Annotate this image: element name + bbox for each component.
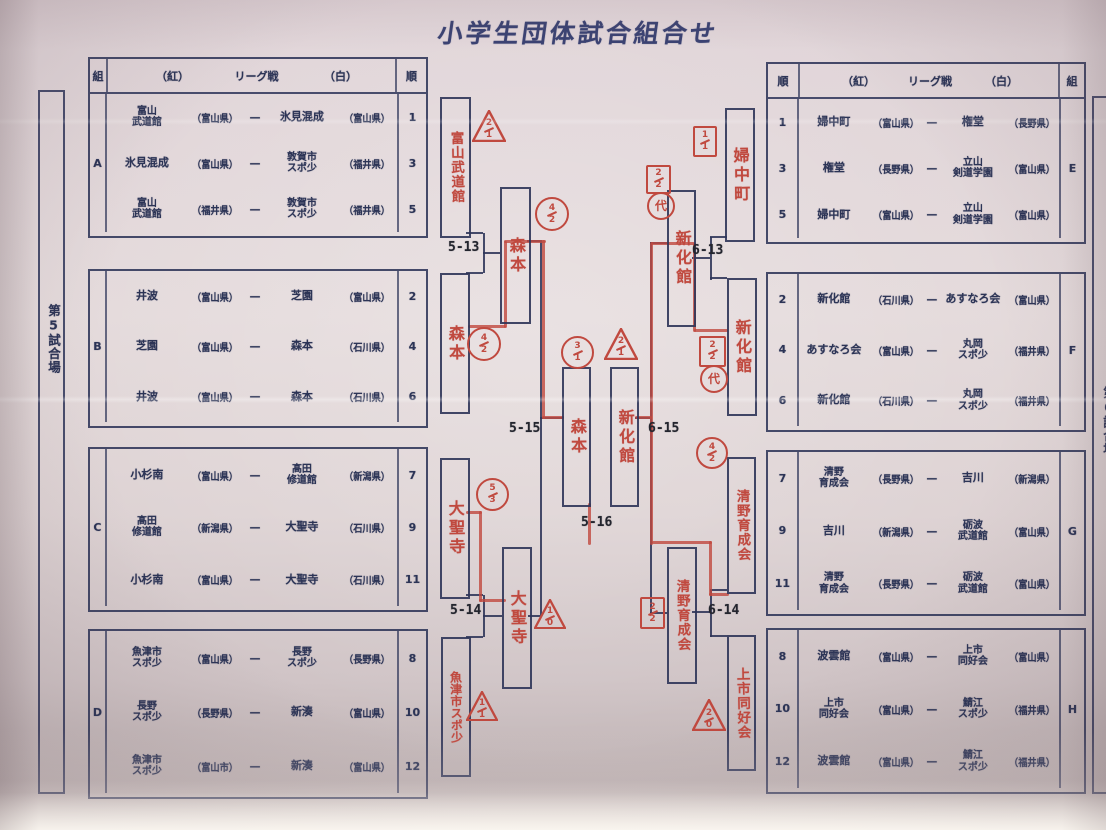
vs-dash: — [249,706,260,719]
red-team-pref: （富山県） [192,156,238,171]
white-team-name: あすなろ会 [945,293,1000,306]
order-number: 7 [409,469,417,482]
order-col-header: 順 [395,59,426,92]
white-side-header: （白） [985,73,1018,89]
league-table-A: 組（紅）リーグ戦（白）順A富山 武道館（富山県）—氷見混成（富山県）氷見混成（富… [88,57,428,238]
league-table-body: 7911清野 育成会（長野県）—吉川（新潟県）吉川（新潟県）—砺波 武道館（富山… [768,452,1084,610]
vs-dash: — [926,394,937,407]
red-team-name: 吉川 [823,525,845,538]
white-team-name: 森本 [291,391,313,404]
white-team-name: 氷見混成 [280,111,324,124]
vs-dash: — [249,652,260,665]
score-bottom: 0 [706,721,712,730]
order-number: 7 [779,472,787,485]
white-team-name: 新湊 [291,760,313,773]
white-team-pref: （新潟県） [344,468,390,483]
order-number: 6 [409,390,417,403]
league-table-body: D魚津市 スポ少（富山県）—長野 スポ少（長野県）長野 スポ少（長野県）—新湊（… [90,631,426,793]
score-value: 53 [488,484,498,505]
league-row: 小杉南（富山県）—大聖寺（石川県） [107,554,397,606]
daihyo-mark: 代 [708,373,720,385]
red-team-pref: （富山県） [873,649,919,664]
team-name-handwritten: 森本 [503,236,528,274]
group-letter-cell: G [1059,452,1084,610]
score-value: 42 [707,443,717,464]
order-number: 9 [779,524,787,537]
bracket-box: 富山武道館 [440,97,471,238]
order-number: 11 [405,573,420,586]
red-team-pref: （富山県） [873,343,919,358]
venue-label-right: 第6試合場 [1099,386,1106,456]
red-team-pref: （富山県） [873,702,919,717]
white-team-pref: （福井県） [1009,754,1055,769]
white-team-pref: （富山県） [1009,649,1055,664]
order-numbers-col: 7911 [768,452,799,610]
score-bottom: 1 [618,349,624,358]
red-team-pref: （長野県） [873,471,919,486]
group-col-label: 組 [93,68,104,84]
vs-dash: — [926,116,937,129]
league-table-header: 順（紅）リーグ戦（白）組 [768,64,1084,99]
winner-path-line [542,416,564,419]
red-team-pref: （新潟県） [192,520,238,535]
white-team-name: 新湊 [291,706,313,719]
league-type-header: リーグ戦 [908,73,952,89]
bracket-box: 新化館 [727,278,757,416]
red-team-name: 婦中町 [817,209,850,222]
vs-dash: — [249,573,260,586]
score-annotation: 11 [466,691,498,721]
red-team-pref: （長野県） [873,161,919,176]
score-annotation: 42 [535,197,569,231]
vs-dash: — [926,472,937,485]
league-table-body: A富山 武道館（富山県）—氷見混成（富山県）氷見混成（富山県）—敦賀市 スポ少（… [90,94,426,232]
score-annotation: 10 [534,599,566,629]
league-row: 井波（富山県）—森本（石川県） [107,372,397,422]
red-team-pref: （長野県） [192,705,238,720]
score-annotation: 22 [646,165,671,194]
white-team-name: 鯖江 スポ少 [958,750,988,773]
red-team-pref: （富山県） [873,754,919,769]
league-row: 長野 スポ少（長野県）—新湊（富山県） [107,685,397,739]
score-value: 代 [655,200,667,212]
white-team-name: 吉川 [962,472,984,485]
score-annotation: 42 [696,437,728,469]
red-team-pref: （富山県） [192,339,238,354]
bracket-box: 大聖寺 [502,547,532,689]
tournament-sheet-photo: 小学生団体試合組合せ 第5試合場 第6試合場 組（紅）リーグ戦（白）順A富山 武… [0,0,1106,830]
league-table-body: 135婦中町（富山県）—権堂（長野県）権堂（長野県）—立山 剣道学園（富山県）婦… [768,99,1084,238]
group-letter-cell: B [90,271,107,422]
score-bottom: 3 [489,496,495,505]
order-number: 3 [779,162,787,175]
vs-dash: — [249,203,260,216]
vs-dash: — [926,293,937,306]
group-letter-cell: A [90,94,107,232]
league-rows: 波雲館（富山県）—上市 同好会（富山県）上市 同好会（富山県）—鯖江 スポ少（福… [799,630,1059,788]
match-label: 5-14 [450,603,481,618]
white-team-name: 権堂 [962,116,984,129]
league-row: 権堂（長野県）—立山 剣道学園（富山県） [799,145,1059,191]
red-team-name: 清野 育成会 [819,467,849,490]
white-team-name: 敦賀市 スポ少 [287,152,317,175]
order-number: 2 [779,293,787,306]
order-number: 1 [779,116,787,129]
score-bottom: 2 [549,216,555,225]
red-team-name: 髙田 修道館 [132,516,162,539]
league-table-F: 246新化館（石川県）—あすなろ会（富山県）あすなろ会（富山県）—丸岡 スポ少（… [766,272,1086,432]
score-bottom: 2 [481,346,487,355]
score-value: 11 [700,131,710,152]
red-team-name: 魚津市 スポ少 [132,647,162,670]
red-team-name: 権堂 [823,162,845,175]
score-value: 22 [648,603,658,624]
score-top: 2 [709,341,715,350]
white-team-pref: （石川県） [344,520,390,535]
league-row: 氷見混成（富山県）—敦賀市 スポ少（福井県） [107,140,397,186]
white-team-name: 立山 剣道学園 [953,203,993,226]
league-table-body: 81012波雲館（富山県）—上市 同好会（富山県）上市 同好会（富山県）—鯖江 … [768,630,1084,788]
order-numbers-col: 135 [768,99,799,238]
white-team-name: 立山 剣道学園 [953,157,993,180]
league-rows: 魚津市 スポ少（富山県）—長野 スポ少（長野県）長野 スポ少（長野県）—新湊（富… [107,631,397,793]
league-row: 清野 育成会（長野県）—砺波 武道館（富山県） [799,557,1059,610]
score-value: 20 [704,702,714,730]
white-team-pref: （福井県） [344,202,390,217]
score-bottom: 1 [486,131,492,140]
order-number: 12 [775,755,790,768]
white-team-pref: （長野県） [1009,115,1055,130]
group-letter: G [1068,525,1077,538]
vs-dash: — [926,703,937,716]
score-value: 代 [708,373,720,385]
team-name-handwritten: 大聖寺 [505,589,530,646]
bracket-line [483,252,500,254]
red-team-name: 新化館 [817,293,850,306]
red-team-pref: （富山市） [192,759,238,774]
red-team-name: 富山 武道館 [132,106,162,129]
vs-dash: — [249,157,260,170]
red-side-header: （紅） [156,68,189,84]
red-team-pref: （富山県） [192,572,238,587]
league-table-H: 81012波雲館（富山県）—上市 同好会（富山県）上市 同好会（富山県）—鯖江 … [766,628,1086,794]
winner-path-line [709,541,712,596]
league-row: あすなろ会（富山県）—丸岡 スポ少（福井県） [799,325,1059,376]
order-number: 3 [409,157,417,170]
score-top: 2 [655,169,661,178]
team-name-handwritten: 新化館 [730,318,755,375]
score-top: 5 [489,484,495,493]
white-team-pref: （新潟県） [1009,471,1055,486]
vs-dash: — [926,650,937,663]
score-value: 10 [545,600,555,628]
white-team-pref: （石川県） [344,389,390,404]
red-team-name: 魚津市 スポ少 [132,755,162,778]
vs-dash: — [926,525,937,538]
league-row: 新化館（石川県）—あすなろ会（富山県） [799,274,1059,325]
league-row: 婦中町（富山県）—立山 剣道学園（富山県） [799,192,1059,238]
league-table-body: 246新化館（石川県）—あすなろ会（富山県）あすなろ会（富山県）—丸岡 スポ少（… [768,274,1084,426]
score-annotation: 20 [692,699,726,733]
league-table-header: 組（紅）リーグ戦（白）順 [90,59,426,94]
league-rows: 富山 武道館（富山県）—氷見混成（富山県）氷見混成（富山県）—敦賀市 スポ少（福… [107,94,397,232]
vs-dash: — [926,208,937,221]
winner-path-line [694,329,728,332]
group-letter-cell: H [1059,630,1084,788]
group-letter: E [1069,162,1077,175]
white-team-name: 敦賀市 スポ少 [287,198,317,221]
winner-path-line [709,593,729,596]
order-number: 8 [409,652,417,665]
red-team-pref: （富山県） [192,468,238,483]
group-letter-cell: F [1059,274,1084,426]
white-team-pref: （長野県） [344,651,390,666]
white-team-pref: （石川県） [344,572,390,587]
score-annotation: 21 [604,328,638,360]
score-annotation: 22 [640,597,665,629]
red-team-name: 上市 同好会 [819,698,849,721]
score-value: 22 [708,341,718,362]
venue-label-left: 第5試合場 [44,304,63,374]
white-team-pref: （富山県） [344,110,390,125]
white-team-name: 長野 スポ少 [287,647,317,670]
league-rows: 井波（富山県）—芝園（富山県）芝園（富山県）—森本（石川県）井波（富山県）—森本… [107,271,397,422]
score-annotation: 代 [647,192,675,220]
league-type-header: リーグ戦 [235,68,279,84]
match-label: 5-15 [509,421,540,436]
header-main: （紅）リーグ戦（白） [800,64,1058,97]
order-number: 8 [779,650,787,663]
group-letter-cell: C [90,449,107,606]
vs-dash: — [249,521,260,534]
venue-column-left: 第5試合場 [38,90,65,794]
team-name-handwritten: 婦中町 [728,146,753,203]
winner-path-line [542,240,545,419]
bracket-line [710,635,727,637]
match-label: 6-14 [708,603,739,618]
bracket-box: 森本 [562,367,591,507]
order-number: 2 [409,290,417,303]
bracket-box: 上市同好会 [727,635,756,771]
red-team-pref: （富山県） [192,110,238,125]
order-numbers-col: 246 [397,271,426,422]
red-team-name: 婦中町 [817,116,850,129]
red-team-pref: （富山県） [192,389,238,404]
white-team-name: 髙田 修道館 [287,464,317,487]
white-team-name: 大聖寺 [285,574,318,587]
white-team-pref: （富山県） [1009,161,1055,176]
score-annotation: 22 [699,336,726,367]
order-number: 6 [779,394,787,407]
league-row: 波雲館（富山県）—鯖江 スポ少（福井県） [799,735,1059,788]
order-numbers-col: 81012 [768,630,799,788]
header-main: （紅）リーグ戦（白） [108,59,395,92]
order-col-label: 順 [778,73,789,89]
group-col-label: 組 [1067,73,1078,89]
team-name-handwritten: 清野育成会 [671,579,692,652]
group-letter: B [93,340,101,353]
red-team-pref: （新潟県） [873,524,919,539]
league-rows: 新化館（石川県）—あすなろ会（富山県）あすなろ会（富山県）—丸岡 スポ少（福井県… [799,274,1059,426]
match-label: 6-15 [648,421,679,436]
red-team-name: 新化館 [817,394,850,407]
white-team-pref: （石川県） [344,339,390,354]
score-bottom: 0 [547,619,553,628]
score-bottom: 2 [709,353,715,362]
score-annotation: 53 [476,478,509,511]
league-rows: 清野 育成会（長野県）—吉川（新潟県）吉川（新潟県）—砺波 武道館（富山県）清野… [799,452,1059,610]
league-row: 上市 同好会（富山県）—鯖江 スポ少（福井県） [799,683,1059,736]
white-team-pref: （富山県） [1009,576,1055,591]
red-team-name: 清野 育成会 [819,572,849,595]
vs-dash: — [249,390,260,403]
winner-path-line [652,541,712,544]
red-team-name: 波雲館 [817,650,850,663]
score-value: 31 [573,342,583,363]
white-team-name: 芝園 [291,290,313,303]
group-letter: H [1068,703,1077,716]
bracket-line [710,277,727,279]
league-row: 吉川（新潟県）—砺波 武道館（富山県） [799,505,1059,558]
red-team-name: 芝園 [136,340,158,353]
red-team-pref: （富山県） [873,207,919,222]
vs-dash: — [249,760,260,773]
bracket-line [710,589,727,591]
red-team-pref: （富山県） [192,651,238,666]
red-team-name: 井波 [136,290,158,303]
league-row: 井波（富山県）—芝園（富山県） [107,271,397,321]
team-name-handwritten: 新化館 [669,230,694,287]
score-bottom: 1 [702,143,708,152]
white-team-pref: （福井県） [1009,702,1055,717]
white-team-name: 大聖寺 [285,521,318,534]
order-numbers-col: 135 [397,94,426,232]
group-letter-cell: D [90,631,107,793]
team-name-handwritten: 清野育成会 [731,489,752,562]
league-row: 芝園（富山県）—森本（石川県） [107,321,397,371]
league-table-B: B井波（富山県）—芝園（富山県）芝園（富山県）—森本（石川県）井波（富山県）—森… [88,269,428,428]
score-value: 42 [547,204,557,225]
red-side-header: （紅） [842,73,875,89]
order-number: 10 [775,702,790,715]
red-team-pref: （石川県） [873,393,919,408]
score-value: 21 [616,330,626,358]
order-col-header: 順 [768,64,800,97]
red-team-pref: （長野県） [873,576,919,591]
order-number: 1 [409,111,417,124]
score-bottom: 2 [709,455,715,464]
vs-dash: — [926,344,937,357]
score-annotation: 11 [693,126,717,157]
bracket-box: 清野育成会 [727,457,756,594]
white-team-name: 鯖江 スポ少 [958,698,988,721]
team-name-handwritten: 森本 [443,324,468,362]
league-table-G: 7911清野 育成会（長野県）—吉川（新潟県）吉川（新潟県）—砺波 武道館（富山… [766,450,1086,616]
score-top: 3 [574,342,580,351]
order-number: 5 [779,208,787,221]
league-rows: 小杉南（富山県）—髙田 修道館（新潟県）髙田 修道館（新潟県）—大聖寺（石川県）… [107,449,397,606]
score-annotation: 42 [467,327,501,361]
league-table-C: C小杉南（富山県）—髙田 修道館（新潟県）髙田 修道館（新潟県）—大聖寺（石川県… [88,447,428,612]
red-team-name: 小杉南 [130,469,163,482]
score-bottom: 2 [649,615,655,624]
group-letter: A [93,157,102,170]
order-numbers-col: 7911 [397,449,426,606]
white-team-pref: （富山県） [344,289,390,304]
bracket-line [483,615,502,617]
white-team-pref: （福井県） [1009,393,1055,408]
league-row: 魚津市 スポ少（富山市）—新湊（富山県） [107,739,397,793]
score-bottom: 2 [655,181,661,190]
red-team-name: 長野 スポ少 [132,701,162,724]
league-table-body: C小杉南（富山県）—髙田 修道館（新潟県）髙田 修道館（新潟県）—大聖寺（石川県… [90,449,426,606]
score-annotation: 31 [561,336,594,369]
score-value: 22 [654,169,664,190]
venue-column-right: 第6試合場 [1092,96,1106,794]
league-row: 清野 育成会（長野県）—吉川（新潟県） [799,452,1059,505]
vs-dash: — [926,162,937,175]
group-letter: D [93,706,102,719]
group-letter-cell: E [1059,99,1084,238]
league-table-body: B井波（富山県）—芝園（富山県）芝園（富山県）—森本（石川県）井波（富山県）—森… [90,271,426,422]
team-name-handwritten: 魚津市スポ少 [447,671,465,743]
score-value: 42 [479,334,489,355]
winner-path-line [479,511,482,602]
red-team-pref: （富山県） [192,289,238,304]
league-row: 婦中町（富山県）—権堂（長野県） [799,99,1059,145]
group-letter: C [93,521,101,534]
bracket-box: 新化館 [610,367,639,507]
team-name-handwritten: 富山武道館 [445,131,466,204]
bracket-box: 森本 [500,187,531,324]
red-team-name: 小杉南 [130,574,163,587]
white-team-pref: （富山県） [344,759,390,774]
white-team-name: 丸岡 スポ少 [958,339,988,362]
group-letter: F [1069,344,1077,357]
score-bottom: 1 [479,711,485,720]
vs-dash: — [249,111,260,124]
group-col-header: 組 [90,59,108,92]
red-team-pref: （福井県） [192,202,238,217]
white-team-name: 丸岡 スポ少 [958,389,988,412]
bracket-box: 森本 [440,273,470,414]
score-value: 21 [484,112,494,140]
order-col-label: 順 [406,68,417,84]
bracket-box: 大聖寺 [440,458,470,599]
vs-dash: — [926,755,937,768]
white-team-pref: （富山県） [344,705,390,720]
team-name-handwritten: 大聖寺 [443,500,468,557]
bracket-box: 清野育成会 [667,547,697,684]
score-value: 11 [477,692,487,720]
league-row: 小杉南（富山県）—髙田 修道館（新潟県） [107,449,397,501]
white-team-pref: （富山県） [1009,292,1055,307]
order-number: 5 [409,203,417,216]
vs-dash: — [249,290,260,303]
order-number: 10 [405,706,420,719]
group-col-header: 組 [1058,64,1084,97]
order-number: 4 [409,340,417,353]
white-team-name: 上市 同好会 [958,645,988,668]
white-side-header: （白） [324,68,357,84]
league-row: 魚津市 スポ少（富山県）—長野 スポ少（長野県） [107,631,397,685]
white-team-name: 砺波 武道館 [958,520,988,543]
white-team-pref: （福井県） [1009,343,1055,358]
score-bottom: 1 [574,354,580,363]
order-number: 9 [409,521,417,534]
vs-dash: — [249,469,260,482]
team-name-handwritten: 新化館 [612,408,637,465]
